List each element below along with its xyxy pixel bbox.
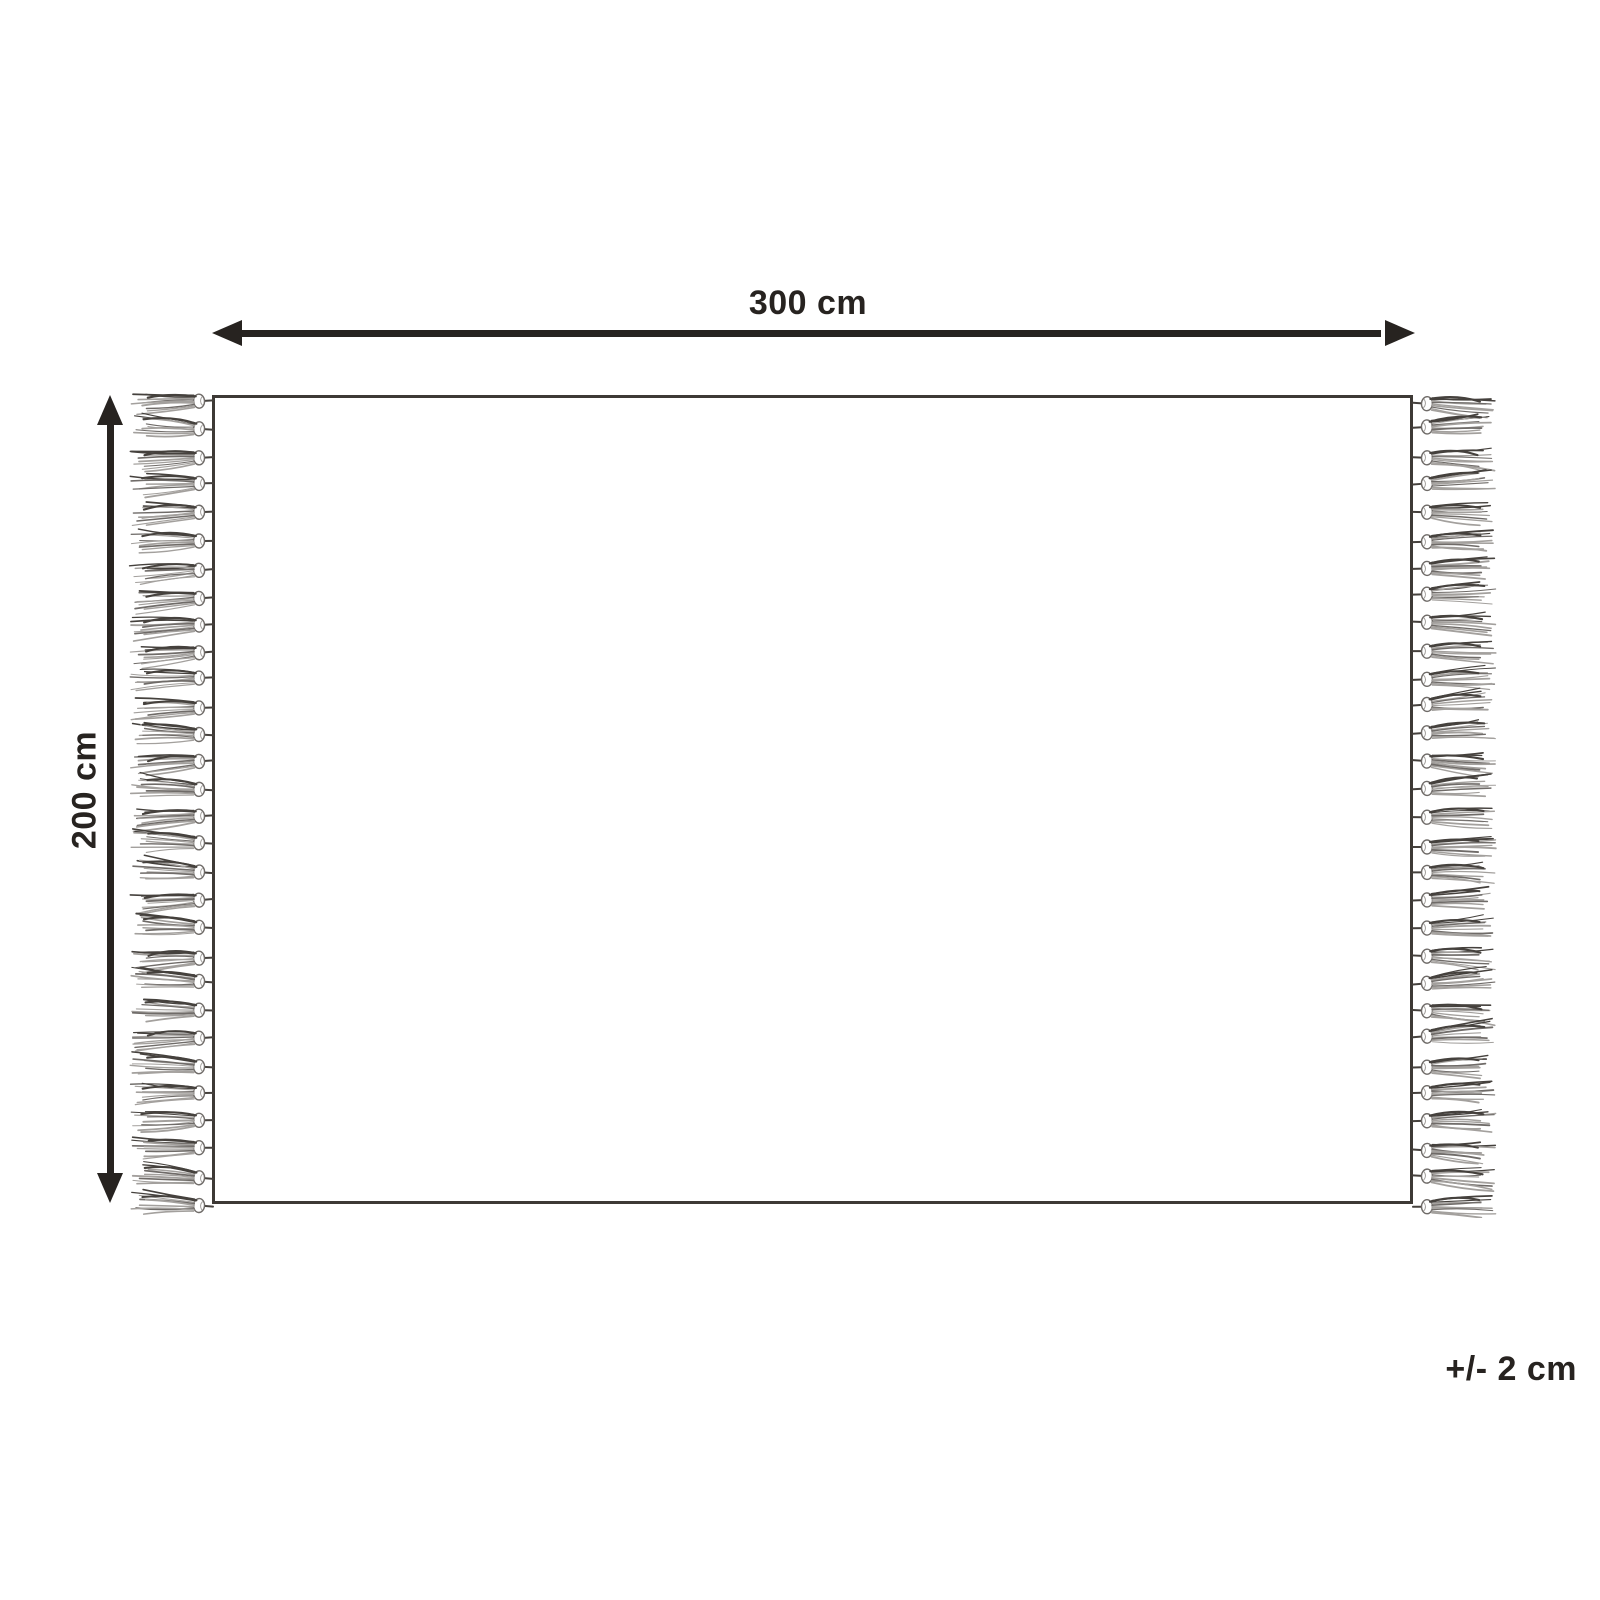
width-dimension-label: 300 cm [749, 284, 867, 323]
arrowhead-right-icon [1385, 320, 1415, 346]
left-fringe-tassels [122, 382, 216, 1218]
width-dimension-line [234, 330, 1381, 337]
rug-outline [212, 395, 1413, 1204]
height-dimension-label: 200 cm [66, 731, 105, 849]
right-fringe-tassels [1406, 382, 1500, 1218]
rug-dimension-diagram: 300 cm 200 cm +/- 2 cm [0, 0, 1600, 1600]
arrowhead-left-icon [212, 320, 242, 346]
height-dimension-line [107, 420, 114, 1178]
arrowhead-up-icon [97, 395, 123, 425]
tolerance-label: +/- 2 cm [1445, 1350, 1577, 1389]
arrowhead-down-icon [97, 1173, 123, 1203]
